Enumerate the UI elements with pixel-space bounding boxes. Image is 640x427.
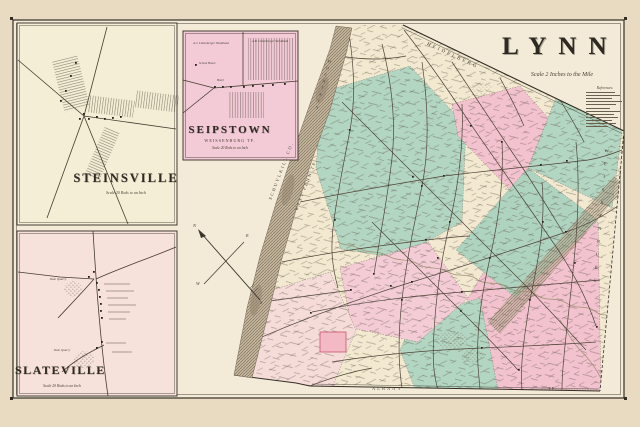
compass-w: W	[196, 281, 200, 286]
quarry-symbol-upper	[64, 281, 82, 297]
reference-entry	[586, 111, 620, 112]
seipstown-title: SEIPSTOWN	[180, 124, 280, 137]
slateville-title: SLATEVILLE	[15, 364, 105, 378]
seipstown-subtitle: WEISSENBURG TP.	[180, 139, 280, 144]
seipstown-lots-upper	[248, 38, 294, 80]
compass-n: N	[193, 223, 196, 228]
seipstown-school-label: School House	[199, 62, 216, 65]
seipstown-scale-note: Scale 20 Rods to an Inch	[180, 146, 280, 150]
references-entries	[584, 92, 626, 127]
reference-entry	[586, 123, 616, 124]
seipstown-lots-lower	[228, 92, 264, 118]
map-title: LYNN	[502, 33, 619, 62]
reference-entry	[586, 117, 618, 118]
reference-entry	[586, 104, 616, 105]
seipstown-woodland-right-label: A.B. Litzenberger Woodland	[250, 40, 290, 44]
reference-entry	[586, 98, 612, 99]
compass-e: E	[246, 233, 249, 238]
atlas-page: LYNN Scale 2 Inches to the Mile Referenc…	[0, 0, 640, 427]
reference-entry	[586, 95, 620, 96]
border-label-albany: ALBANY	[372, 386, 403, 391]
slateville-quarry-lower-label: Slate Quarry	[50, 349, 74, 353]
compass-s: S	[260, 300, 262, 305]
reference-entry	[586, 126, 608, 127]
seipstown-hotel-label: Hotel	[217, 79, 224, 82]
slateville-quarry-upper-label: Slate Quarry	[46, 278, 70, 282]
reference-entry	[586, 120, 612, 121]
border-label-albany-tp: TP.	[548, 386, 557, 391]
seipstown-woodland-left-label: A.J. Litzenberger Woodland	[190, 42, 232, 46]
reference-entry	[586, 92, 615, 93]
steinsville-scale-note: Scale 20 Rods to an Inch	[76, 191, 176, 196]
slateville-scale-note: Scale 20 Rods to an Inch	[22, 384, 102, 388]
references-legend: References.	[584, 86, 626, 127]
reference-entry	[586, 108, 610, 109]
reference-entry	[586, 101, 622, 102]
map-scale-note: Scale 2 Inches to the Mile	[512, 72, 612, 79]
reference-entry	[586, 114, 614, 115]
steinsville-title: STEINSVILLE	[56, 171, 196, 185]
references-title: References.	[584, 86, 626, 90]
